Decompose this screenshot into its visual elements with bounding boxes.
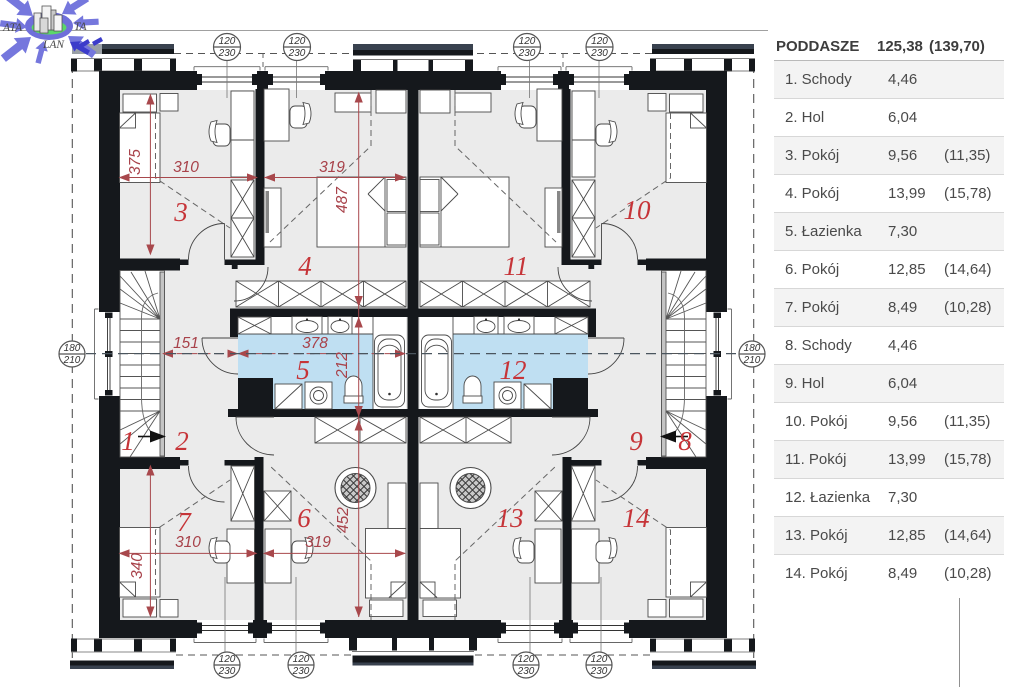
svg-text:120: 120: [591, 36, 608, 47]
svg-text:120: 120: [591, 654, 608, 665]
svg-text:319: 319: [319, 159, 345, 176]
svg-text:210: 210: [743, 355, 761, 366]
svg-text:378: 378: [302, 335, 328, 352]
svg-text:151: 151: [173, 335, 199, 352]
svg-text:230: 230: [288, 48, 306, 59]
svg-text:212: 212: [334, 352, 351, 379]
svg-text:13: 13: [497, 503, 524, 533]
svg-text:120: 120: [289, 36, 306, 47]
svg-text:120: 120: [518, 654, 535, 665]
svg-text:230: 230: [218, 666, 236, 677]
svg-text:5: 5: [296, 355, 310, 385]
svg-text:TA: TA: [74, 21, 88, 33]
svg-text:375: 375: [127, 149, 144, 175]
svg-text:230: 230: [590, 666, 608, 677]
svg-text:120: 120: [219, 654, 236, 665]
svg-text:230: 230: [518, 48, 536, 59]
svg-text:210: 210: [63, 355, 81, 366]
svg-text:ATA: ATA: [2, 22, 23, 34]
svg-text:340: 340: [129, 553, 146, 579]
svg-text:319: 319: [305, 534, 331, 551]
svg-text:3: 3: [173, 197, 188, 227]
svg-text:230: 230: [218, 48, 236, 59]
svg-text:452: 452: [335, 507, 352, 533]
svg-text:9: 9: [629, 426, 643, 456]
svg-text:11: 11: [504, 251, 529, 281]
svg-text:120: 120: [293, 654, 310, 665]
svg-text:14: 14: [623, 503, 650, 533]
svg-text:180: 180: [744, 343, 761, 354]
svg-text:180: 180: [64, 343, 81, 354]
svg-text:8: 8: [678, 426, 692, 456]
svg-text:230: 230: [292, 666, 310, 677]
svg-text:7: 7: [177, 507, 192, 537]
svg-text:10: 10: [624, 195, 652, 225]
svg-text:LAN: LAN: [42, 39, 65, 51]
svg-text:230: 230: [590, 48, 608, 59]
svg-text:120: 120: [219, 36, 236, 47]
svg-text:12: 12: [500, 355, 527, 385]
svg-text:487: 487: [334, 186, 351, 213]
svg-text:1: 1: [121, 426, 135, 456]
svg-text:2: 2: [175, 426, 189, 456]
svg-text:6: 6: [297, 503, 311, 533]
svg-text:310: 310: [173, 159, 199, 176]
svg-text:4: 4: [298, 251, 312, 281]
svg-text:120: 120: [519, 36, 536, 47]
svg-text:230: 230: [517, 666, 535, 677]
